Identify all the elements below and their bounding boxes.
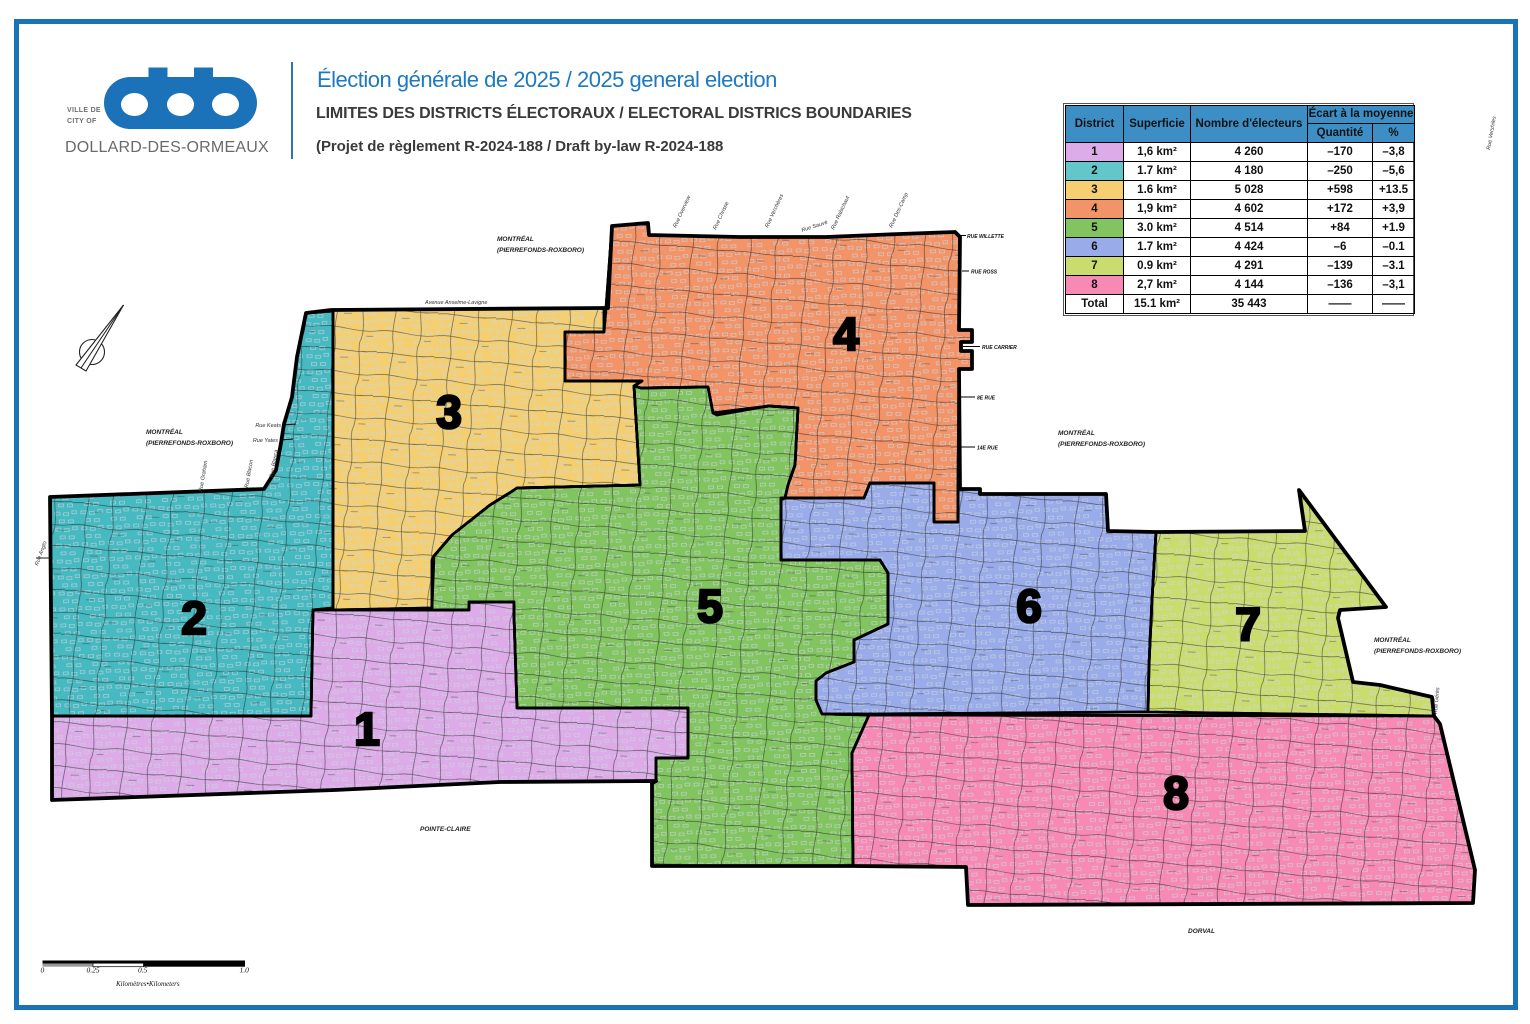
svg-text:MONTRÉAL: MONTRÉAL bbox=[146, 427, 183, 436]
svg-text:Rue Keats: Rue Keats bbox=[255, 423, 281, 429]
svg-text:1.0: 1.0 bbox=[240, 966, 250, 975]
svg-text:Rue Sauvé: Rue Sauvé bbox=[801, 220, 829, 234]
svg-text:Rue Des-Camp: Rue Des-Camp bbox=[888, 192, 909, 229]
svg-text:Avenue Anselme-Lavigne: Avenue Anselme-Lavigne bbox=[424, 300, 487, 306]
svg-text:0.25: 0.25 bbox=[87, 966, 100, 975]
svg-text:Kilomètres•Kilometers: Kilomètres•Kilometers bbox=[115, 980, 180, 988]
svg-text:RUE ROSS: RUE ROSS bbox=[971, 270, 998, 276]
svg-text:RUE WILLETTE: RUE WILLETTE bbox=[967, 234, 1005, 240]
svg-text:6: 6 bbox=[1016, 580, 1042, 632]
svg-text:Rue Vershiles: Rue Vershiles bbox=[1486, 116, 1498, 151]
svg-text:4: 4 bbox=[833, 308, 859, 360]
svg-text:Rue Anglo: Rue Anglo bbox=[34, 541, 48, 567]
svg-text:14E RUE: 14E RUE bbox=[977, 446, 999, 452]
svg-text:(PIERREFONDS-ROXBORO): (PIERREFONDS-ROXBORO) bbox=[1374, 648, 1461, 655]
svg-text:3: 3 bbox=[436, 386, 462, 438]
svg-text:MONTRÉAL: MONTRÉAL bbox=[1374, 635, 1411, 644]
svg-text:5: 5 bbox=[697, 580, 723, 632]
svg-text:1: 1 bbox=[354, 703, 380, 755]
svg-text:RUE CARRIER: RUE CARRIER bbox=[982, 345, 1017, 351]
svg-text:Rue Graham: Rue Graham bbox=[198, 460, 209, 492]
svg-text:7: 7 bbox=[1235, 598, 1261, 650]
svg-text:Rue Overview: Rue Overview bbox=[672, 194, 692, 229]
svg-text:8: 8 bbox=[1163, 767, 1189, 819]
svg-text:(PIERREFONDS-ROXBORO): (PIERREFONDS-ROXBORO) bbox=[1058, 441, 1145, 448]
svg-text:0: 0 bbox=[41, 966, 45, 975]
svg-text:Rue Yates: Rue Yates bbox=[253, 438, 278, 444]
svg-text:0.5: 0.5 bbox=[138, 966, 148, 975]
svg-text:8E RUE: 8E RUE bbox=[977, 396, 996, 402]
svg-text:Rue Verchères: Rue Verchères bbox=[764, 193, 785, 229]
svg-text:2: 2 bbox=[181, 592, 207, 644]
svg-text:(PIERREFONDS-ROXBORO): (PIERREFONDS-ROXBORO) bbox=[497, 247, 584, 254]
svg-text:Rue Blacon: Rue Blacon bbox=[244, 459, 255, 488]
svg-text:Rue Christie: Rue Christie bbox=[712, 201, 730, 231]
svg-text:(PIERREFONDS-ROXBORO): (PIERREFONDS-ROXBORO) bbox=[146, 440, 233, 447]
svg-text:Rue Gérès: Rue Gérès bbox=[1433, 687, 1441, 714]
svg-text:Rue Rabichaut: Rue Rabichaut bbox=[830, 195, 851, 231]
svg-text:MONTRÉAL: MONTRÉAL bbox=[497, 234, 534, 243]
svg-text:MONTRÉAL: MONTRÉAL bbox=[1058, 428, 1095, 437]
svg-text:DORVAL: DORVAL bbox=[1188, 928, 1215, 935]
svg-text:POINTE-CLAIRE: POINTE-CLAIRE bbox=[420, 826, 471, 833]
